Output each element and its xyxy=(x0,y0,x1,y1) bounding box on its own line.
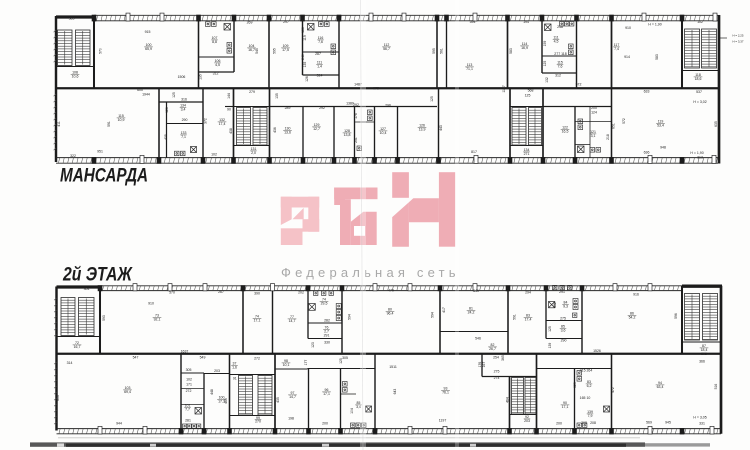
svg-text:383: 383 xyxy=(69,17,75,21)
svg-text:305: 305 xyxy=(186,368,192,372)
svg-text:91: 91 xyxy=(233,377,237,381)
svg-text:7,7: 7,7 xyxy=(185,407,190,411)
svg-text:366: 366 xyxy=(699,360,705,364)
svg-text:595: 595 xyxy=(273,48,277,54)
svg-text:290: 290 xyxy=(182,118,188,122)
svg-text:568: 568 xyxy=(528,89,534,93)
svg-text:159: 159 xyxy=(543,41,547,47)
svg-text:17,4: 17,4 xyxy=(219,122,226,126)
svg-text:595: 595 xyxy=(432,48,436,54)
svg-text:202: 202 xyxy=(298,291,304,295)
svg-text:240: 240 xyxy=(301,54,305,60)
svg-text:270: 270 xyxy=(255,420,261,424)
svg-text:54,2: 54,2 xyxy=(629,315,636,319)
svg-text:291: 291 xyxy=(324,334,330,338)
svg-text:1511: 1511 xyxy=(389,365,397,369)
svg-text:3,4: 3,4 xyxy=(181,107,186,111)
svg-text:Федеральная сеть: Федеральная сеть xyxy=(281,265,460,280)
svg-text:26,7: 26,7 xyxy=(489,347,496,351)
svg-text:10,4: 10,4 xyxy=(380,131,387,135)
svg-text:10,9: 10,9 xyxy=(118,118,125,122)
svg-text:633: 633 xyxy=(644,90,650,94)
svg-text:330: 330 xyxy=(324,341,330,345)
svg-text:17,1: 17,1 xyxy=(323,392,330,396)
svg-text:613: 613 xyxy=(56,395,60,401)
svg-text:464: 464 xyxy=(506,397,510,403)
svg-text:572: 572 xyxy=(576,83,582,87)
svg-text:14,7: 14,7 xyxy=(289,319,296,323)
svg-text:313: 313 xyxy=(697,156,703,160)
svg-text:572: 572 xyxy=(622,118,626,124)
svg-text:10,6: 10,6 xyxy=(72,74,79,78)
svg-text:126: 126 xyxy=(305,76,309,82)
svg-text:125: 125 xyxy=(525,94,531,98)
svg-text:165 10: 165 10 xyxy=(580,396,591,400)
svg-text:302: 302 xyxy=(701,352,707,356)
svg-text:279: 279 xyxy=(249,90,255,94)
svg-text:651: 651 xyxy=(611,123,615,129)
svg-text:7,4: 7,4 xyxy=(614,47,619,51)
svg-text:102: 102 xyxy=(211,153,217,157)
svg-text:448: 448 xyxy=(210,389,214,395)
svg-text:4,5: 4,5 xyxy=(215,63,220,67)
svg-text:198: 198 xyxy=(288,417,294,421)
svg-text:331: 331 xyxy=(699,422,705,426)
svg-text:14,7: 14,7 xyxy=(289,395,296,399)
svg-text:274: 274 xyxy=(494,376,500,380)
svg-text:332: 332 xyxy=(553,302,557,308)
svg-text:298: 298 xyxy=(581,421,587,425)
svg-text:92,1: 92,1 xyxy=(154,317,161,321)
svg-text:167: 167 xyxy=(482,362,486,368)
svg-text:1,6: 1,6 xyxy=(232,365,237,369)
svg-text:472: 472 xyxy=(611,387,615,393)
svg-text:12,7: 12,7 xyxy=(313,127,320,131)
svg-text:635: 635 xyxy=(714,121,718,127)
svg-text:13,8: 13,8 xyxy=(344,133,351,137)
svg-text:915: 915 xyxy=(145,30,151,34)
svg-text:2,0: 2,0 xyxy=(251,151,256,155)
svg-text:8,8: 8,8 xyxy=(212,40,217,44)
svg-text:119: 119 xyxy=(303,35,307,41)
svg-text:541: 541 xyxy=(473,289,479,293)
svg-text:56,7: 56,7 xyxy=(383,47,390,51)
svg-text:289: 289 xyxy=(285,106,291,110)
svg-text:17,5: 17,5 xyxy=(282,48,289,52)
svg-text:272: 272 xyxy=(186,389,192,393)
svg-text:297: 297 xyxy=(283,20,289,24)
svg-text:436: 436 xyxy=(273,127,277,133)
svg-text:203: 203 xyxy=(214,369,220,373)
svg-text:7,9: 7,9 xyxy=(588,414,593,418)
svg-text:910: 910 xyxy=(625,26,631,30)
svg-text:443: 443 xyxy=(439,125,443,131)
svg-text:629: 629 xyxy=(573,382,577,388)
svg-text:916: 916 xyxy=(633,293,639,297)
svg-text:593: 593 xyxy=(102,315,106,321)
svg-text:63,4: 63,4 xyxy=(657,385,664,389)
svg-text:4,5: 4,5 xyxy=(554,39,559,43)
svg-text:13,9: 13,9 xyxy=(419,127,426,131)
svg-text:269: 269 xyxy=(247,21,253,25)
svg-text:914: 914 xyxy=(624,55,630,59)
svg-text:636: 636 xyxy=(644,151,650,155)
svg-text:281: 281 xyxy=(185,418,191,422)
svg-text:267: 267 xyxy=(218,290,224,294)
svg-text:104: 104 xyxy=(350,408,354,414)
svg-text:910: 910 xyxy=(148,302,154,306)
svg-text:177: 177 xyxy=(304,360,308,366)
svg-text:135: 135 xyxy=(275,93,279,99)
svg-text:218: 218 xyxy=(606,134,610,140)
svg-text:125: 125 xyxy=(339,358,343,364)
svg-text:312: 312 xyxy=(213,72,219,76)
svg-text:194: 194 xyxy=(523,20,529,24)
svg-text:292: 292 xyxy=(319,106,325,110)
svg-text:537: 537 xyxy=(696,90,702,94)
svg-text:Н = 3,37: Н = 3,37 xyxy=(732,40,743,44)
svg-text:МАНСАРДА: МАНСАРДА xyxy=(60,166,148,187)
svg-text:13,6: 13,6 xyxy=(284,130,291,134)
svg-text:1177: 1177 xyxy=(502,85,506,92)
svg-text:390: 390 xyxy=(254,292,260,296)
svg-text:1637: 1637 xyxy=(181,350,189,354)
svg-text:417: 417 xyxy=(442,307,446,313)
svg-text:16,9: 16,9 xyxy=(521,46,528,50)
svg-text:272: 272 xyxy=(254,357,260,361)
svg-text:Н = 2,25: Н = 2,25 xyxy=(732,34,743,38)
svg-text:275: 275 xyxy=(494,370,500,374)
svg-text:17,1: 17,1 xyxy=(254,318,261,322)
svg-text:251: 251 xyxy=(354,137,358,143)
svg-text:643: 643 xyxy=(393,389,397,395)
svg-text:144: 144 xyxy=(227,93,231,99)
svg-text:Н = 1,90: Н = 1,90 xyxy=(690,151,703,155)
svg-text:Н = 3,05: Н = 3,05 xyxy=(693,416,706,420)
svg-text:18,6: 18,6 xyxy=(695,77,702,81)
svg-text:53,4: 53,4 xyxy=(657,123,664,127)
svg-text:200: 200 xyxy=(322,422,328,426)
svg-text:314: 314 xyxy=(317,74,323,78)
svg-text:7,6: 7,6 xyxy=(558,64,563,68)
svg-text:545: 545 xyxy=(255,48,259,54)
svg-text:125: 125 xyxy=(430,96,434,102)
svg-text:945: 945 xyxy=(665,421,671,425)
svg-text:322: 322 xyxy=(70,154,76,158)
svg-text:291: 291 xyxy=(559,290,565,294)
svg-text:479: 479 xyxy=(388,289,394,293)
svg-text:176: 176 xyxy=(354,113,358,119)
svg-text:596: 596 xyxy=(674,313,678,319)
svg-text:817: 817 xyxy=(471,150,477,154)
svg-text:Н = 1,90: Н = 1,90 xyxy=(648,23,661,27)
svg-text:123: 123 xyxy=(311,342,315,348)
svg-text:948: 948 xyxy=(660,146,666,150)
svg-text:411: 411 xyxy=(57,121,61,127)
svg-text:435: 435 xyxy=(164,134,168,140)
svg-text:10,1: 10,1 xyxy=(283,363,290,367)
svg-text:546: 546 xyxy=(475,337,481,341)
svg-text:570: 570 xyxy=(99,48,103,54)
svg-text:125: 125 xyxy=(548,326,552,332)
svg-text:365: 365 xyxy=(501,355,505,361)
svg-text:951: 951 xyxy=(97,150,103,154)
svg-text:135: 135 xyxy=(303,62,307,68)
svg-text:944: 944 xyxy=(116,422,122,426)
svg-text:208: 208 xyxy=(590,421,596,425)
svg-text:186: 186 xyxy=(301,27,305,33)
svg-text:96,4: 96,4 xyxy=(387,311,394,315)
svg-text:171: 171 xyxy=(186,383,192,387)
svg-text:287: 287 xyxy=(315,52,321,56)
svg-text:583: 583 xyxy=(509,48,513,54)
svg-text:24,2: 24,2 xyxy=(468,310,475,314)
svg-text:6,2: 6,2 xyxy=(587,384,592,388)
svg-text:569: 569 xyxy=(646,421,652,425)
svg-text:17,4: 17,4 xyxy=(525,317,532,321)
svg-text:438: 438 xyxy=(229,128,233,134)
svg-text:547: 547 xyxy=(133,356,139,360)
svg-text:591: 591 xyxy=(107,121,111,127)
svg-text:76,1: 76,1 xyxy=(442,390,449,394)
svg-text:304: 304 xyxy=(84,287,90,291)
svg-text:275: 275 xyxy=(560,316,566,320)
svg-text:972: 972 xyxy=(373,87,379,91)
svg-text:312: 312 xyxy=(555,74,561,78)
svg-text:561: 561 xyxy=(440,48,444,54)
svg-text:203: 203 xyxy=(524,419,530,423)
svg-text:549: 549 xyxy=(200,356,206,360)
svg-text:7,1: 7,1 xyxy=(181,135,186,139)
svg-text:139: 139 xyxy=(548,343,552,349)
svg-text:1,4: 1,4 xyxy=(317,64,322,68)
svg-text:69,4: 69,4 xyxy=(124,390,131,394)
svg-text:29,5: 29,5 xyxy=(321,301,328,305)
svg-text:2й ЭТАЖ: 2й ЭТАЖ xyxy=(62,265,133,286)
svg-text:16,7: 16,7 xyxy=(248,48,255,52)
svg-text:125: 125 xyxy=(543,61,547,67)
svg-text:248: 248 xyxy=(557,25,563,29)
svg-text:200: 200 xyxy=(556,422,562,426)
svg-text:200: 200 xyxy=(591,106,597,110)
svg-text:65,9: 65,9 xyxy=(145,47,152,51)
svg-text:290: 290 xyxy=(561,339,567,343)
svg-text:372: 372 xyxy=(204,118,208,124)
svg-text:516: 516 xyxy=(714,384,718,390)
svg-text:3,6: 3,6 xyxy=(561,328,566,332)
svg-text:132: 132 xyxy=(545,77,549,83)
svg-text:17,1: 17,1 xyxy=(562,405,569,409)
svg-text:71,1: 71,1 xyxy=(466,67,473,71)
svg-text:296: 296 xyxy=(385,104,391,108)
svg-text:126: 126 xyxy=(165,107,169,113)
svg-text:591: 591 xyxy=(512,314,516,320)
svg-text:316: 316 xyxy=(181,98,187,102)
svg-text:594: 594 xyxy=(347,314,351,320)
svg-text:583: 583 xyxy=(655,54,659,60)
svg-text:3,1: 3,1 xyxy=(591,134,596,138)
svg-text:292: 292 xyxy=(353,103,359,107)
svg-text:314: 314 xyxy=(67,361,73,365)
svg-text:124: 124 xyxy=(591,111,597,115)
svg-text:215 264: 215 264 xyxy=(580,369,593,373)
svg-text:294: 294 xyxy=(525,291,531,295)
svg-text:594: 594 xyxy=(470,20,476,24)
svg-text:271: 271 xyxy=(524,152,530,156)
svg-text:7,6: 7,6 xyxy=(318,40,323,44)
svg-text:254: 254 xyxy=(493,356,499,360)
svg-text:125: 125 xyxy=(172,92,176,98)
svg-text:277 118: 277 118 xyxy=(554,52,566,56)
svg-text:102: 102 xyxy=(186,378,192,382)
svg-text:1526: 1526 xyxy=(593,349,601,353)
svg-text:16,7: 16,7 xyxy=(74,345,81,349)
svg-text:Н = 3,02: Н = 3,02 xyxy=(693,100,706,104)
svg-text:600: 600 xyxy=(137,88,143,92)
svg-text:102: 102 xyxy=(697,20,703,24)
svg-text:135: 135 xyxy=(199,74,203,80)
svg-text:570: 570 xyxy=(169,291,175,295)
svg-text:1197: 1197 xyxy=(439,419,447,423)
svg-text:435: 435 xyxy=(276,397,280,403)
svg-text:1944: 1944 xyxy=(142,93,150,97)
svg-text:465: 465 xyxy=(224,398,228,404)
svg-text:1506: 1506 xyxy=(178,75,186,79)
svg-text:9,3: 9,3 xyxy=(563,304,568,308)
svg-text:282: 282 xyxy=(324,319,330,323)
svg-text:594: 594 xyxy=(431,312,435,318)
svg-text:16,5: 16,5 xyxy=(562,129,569,133)
svg-text:90: 90 xyxy=(227,108,231,112)
